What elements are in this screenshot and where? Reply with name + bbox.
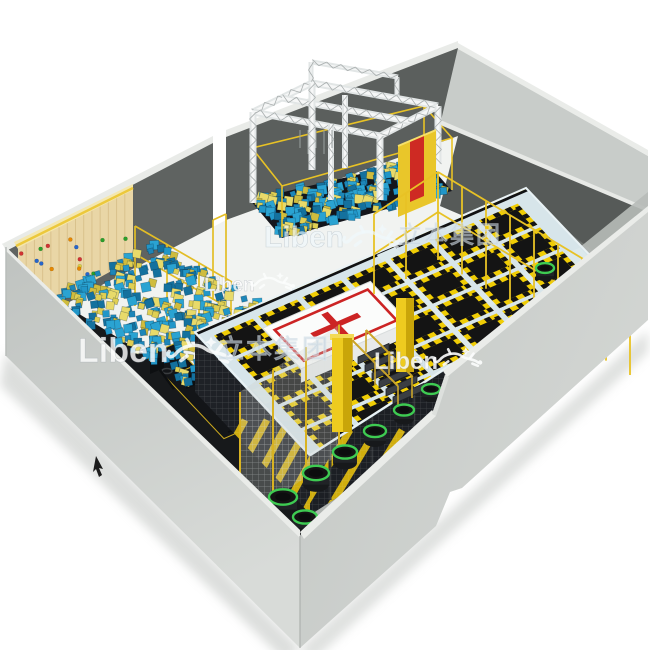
watermark-logo-text: Liben [78, 332, 169, 370]
watermark-logo-text: Liben [374, 348, 438, 375]
trampoline-park-render: Liben Liben 立本集团 Liben 立本集团 Liben [0, 0, 650, 650]
watermark-cn-text: 立本集团 [218, 334, 330, 365]
watermark-cn-text: 立本集团 [398, 221, 502, 249]
watermark-logo-text: Liben [204, 275, 255, 296]
render-canvas: Liben Liben 立本集团 Liben 立本集团 Liben [0, 0, 650, 650]
watermark-logo-text: Liben [264, 221, 344, 254]
